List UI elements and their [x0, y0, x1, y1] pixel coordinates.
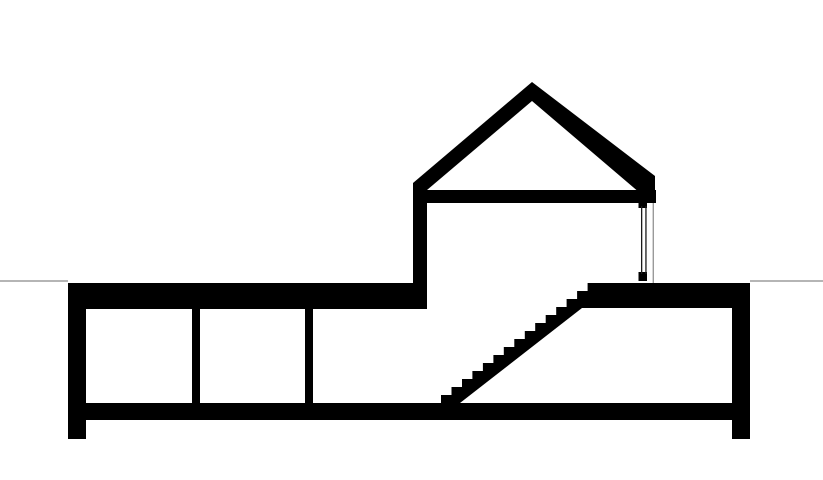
section-drawing-canvas — [0, 0, 823, 480]
window-jamb-line — [653, 203, 654, 283]
ground-line-left — [0, 280, 68, 282]
window-glazing-line-outer — [645, 206, 646, 274]
roof-right-slope — [532, 82, 655, 203]
staircase — [441, 283, 598, 403]
attic-tie-beam — [413, 190, 656, 203]
basement-top-slab-right — [598, 283, 750, 308]
basement-partition-wall-1 — [192, 309, 200, 403]
ground-line-right — [750, 280, 823, 282]
upper-floor-left-wall — [413, 183, 427, 283]
basement-floor-slab — [68, 403, 750, 420]
basement-partition-wall-2 — [305, 309, 313, 403]
section-drawing — [0, 0, 823, 480]
window-glazing-line-inner — [641, 206, 642, 274]
basement-top-slab-left — [68, 283, 427, 309]
roof-left-slope — [413, 82, 532, 190]
